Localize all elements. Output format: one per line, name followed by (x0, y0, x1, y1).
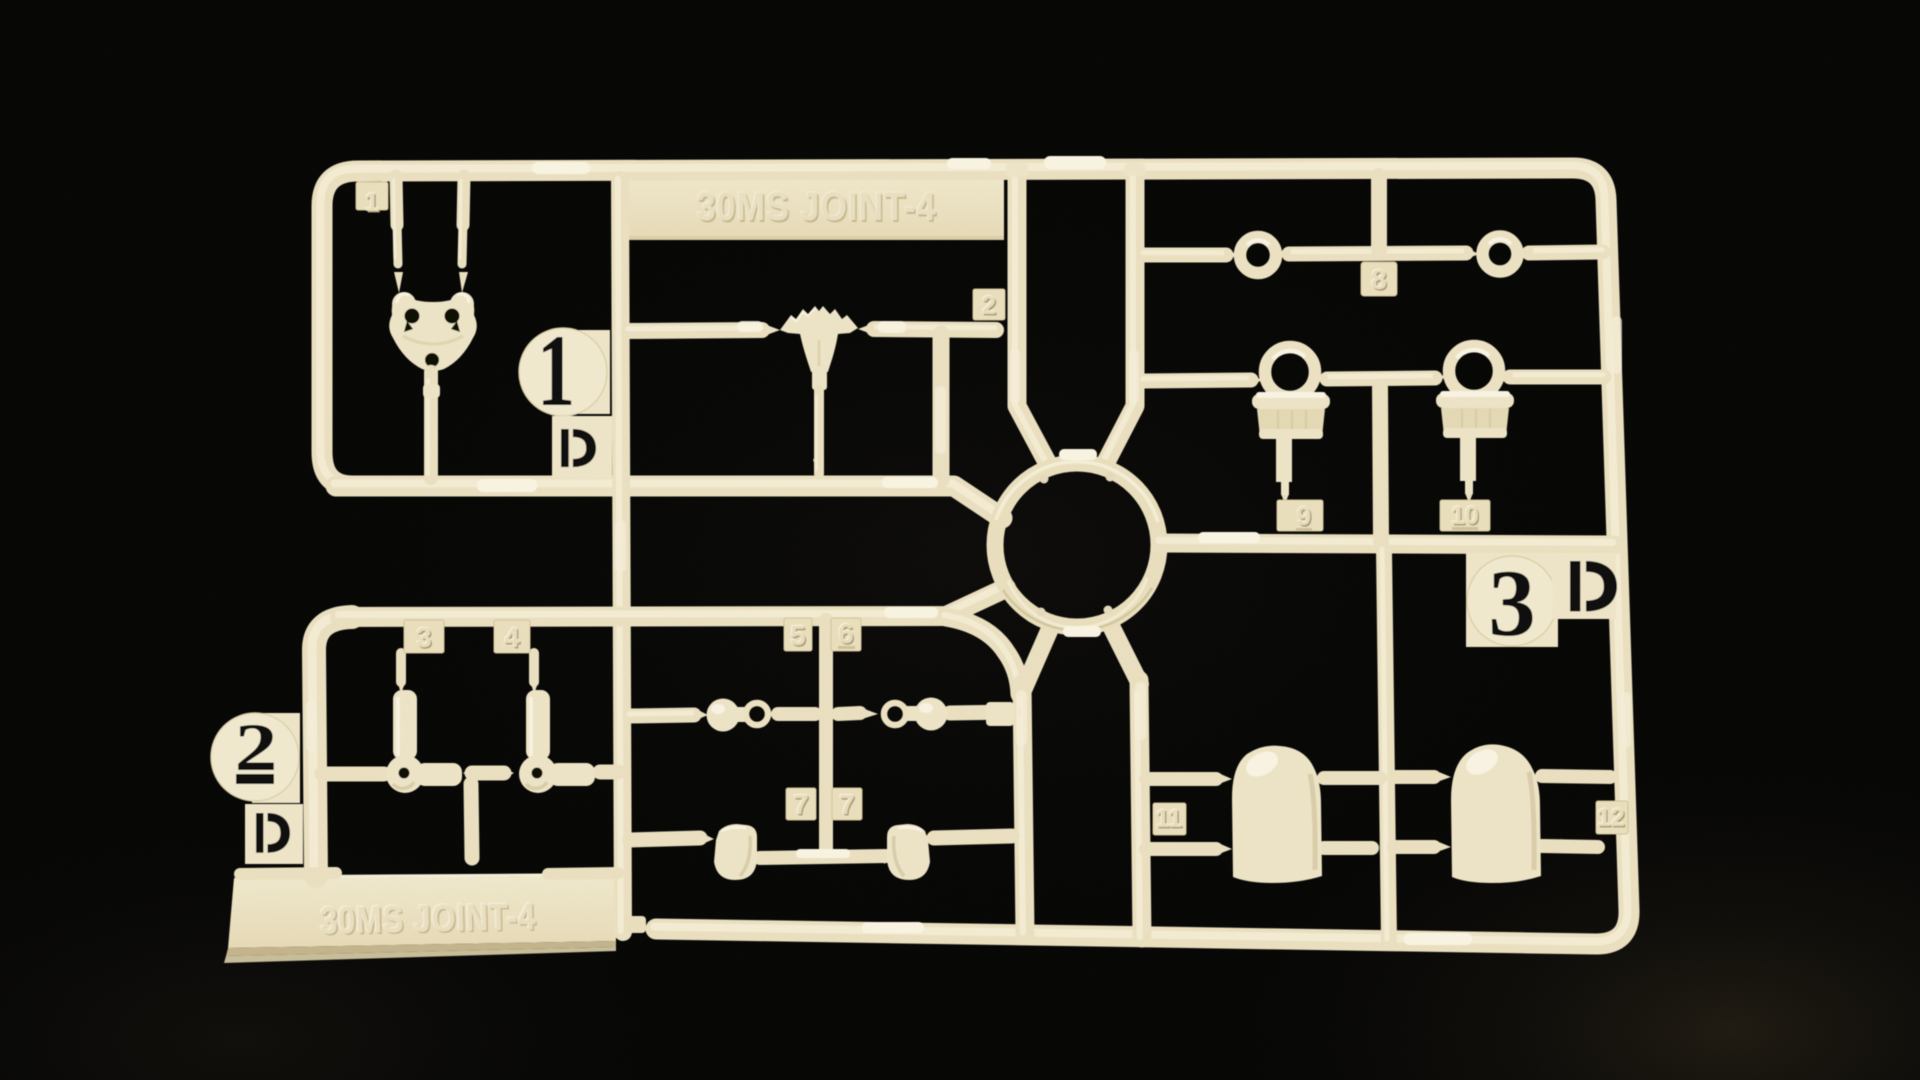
svg-text:2: 2 (982, 290, 996, 320)
svg-text:3: 3 (416, 622, 432, 653)
svg-text:10: 10 (1451, 502, 1479, 530)
svg-text:30MS JOINT-4: 30MS JOINT-4 (697, 185, 937, 229)
svg-text:9: 9 (1297, 501, 1311, 531)
svg-text:30MS JOINT-4: 30MS JOINT-4 (320, 896, 537, 943)
svg-text:5: 5 (790, 620, 806, 651)
svg-text:7: 7 (793, 789, 809, 820)
svg-text:1: 1 (537, 313, 575, 428)
svg-text:2: 2 (235, 709, 278, 785)
svg-text:8: 8 (1371, 264, 1387, 295)
svg-text:11: 11 (1156, 805, 1183, 833)
svg-text:12: 12 (1597, 804, 1625, 832)
svg-text:6: 6 (838, 618, 854, 649)
svg-text:7: 7 (839, 789, 855, 820)
svg-text:3: 3 (1488, 550, 1536, 656)
svg-text:1: 1 (365, 187, 379, 217)
svg-text:4: 4 (504, 622, 520, 653)
